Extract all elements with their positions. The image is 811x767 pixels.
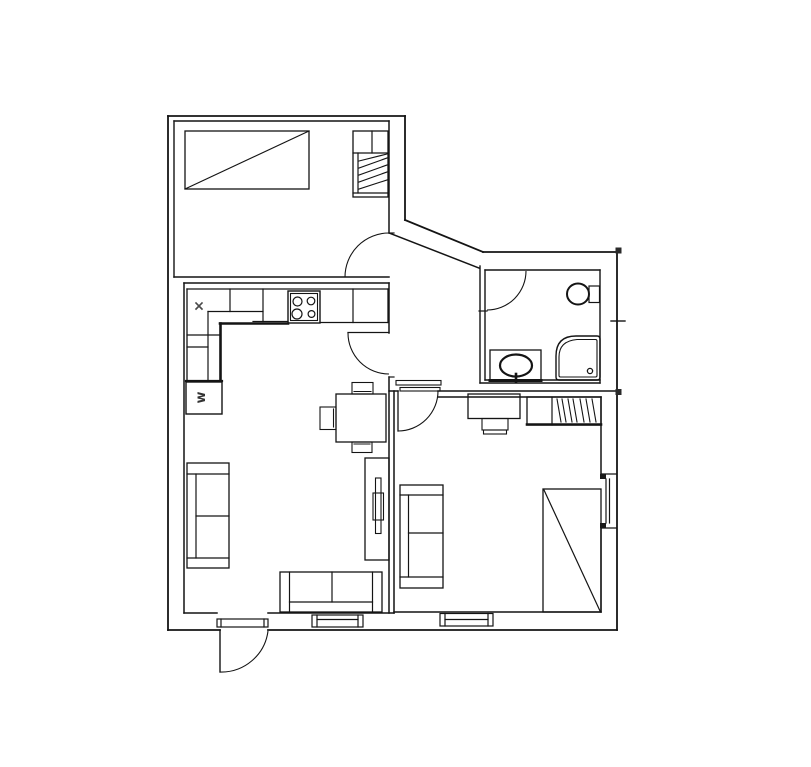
wardrobe1-hanger-1	[359, 180, 387, 189]
desk-chair-seat[interactable]	[482, 419, 508, 431]
stove-burner-tl	[293, 297, 302, 306]
wardrobe2-hanger-4	[573, 399, 577, 422]
wardrobe2-hanger-5	[580, 399, 584, 422]
tv-bracket	[373, 493, 384, 520]
sofa3-outline[interactable]	[400, 485, 443, 588]
door-arc-room1[interactable]	[345, 233, 389, 277]
selection-handle-top[interactable]	[616, 248, 622, 254]
shower-tray-inner	[559, 340, 597, 378]
wardrobe2-hanger-1	[557, 399, 561, 422]
window-bedroom-right-cap-bottom	[600, 523, 606, 528]
washing-machine-marker: w	[194, 391, 209, 403]
wall-outer-diagonal	[405, 220, 483, 252]
wardrobe2-hanger-6	[586, 399, 590, 422]
bed2-diagonal	[544, 490, 600, 611]
stove-outline[interactable]	[288, 291, 320, 323]
bed1-diagonal	[185, 131, 309, 189]
entrance-threshold	[217, 619, 268, 627]
door-arc-bathroom[interactable]	[487, 271, 526, 310]
stove-burner-tr	[307, 297, 315, 305]
tv-screen	[376, 478, 382, 534]
window-living-frame[interactable]	[312, 615, 363, 627]
shower-tray-outer[interactable]	[556, 336, 600, 380]
toilet-tank	[589, 286, 600, 303]
chair-top[interactable]	[352, 383, 373, 395]
door-arc-bedroom2[interactable]	[398, 391, 438, 431]
dining-table[interactable]	[336, 394, 386, 442]
corner-cabinet-marker: ×	[193, 299, 205, 315]
wall-inner-diagonal	[389, 233, 479, 268]
window-bedroom-right-cap-top	[600, 474, 606, 479]
shower-drain	[587, 368, 592, 373]
floor-plan-page: ×w	[0, 0, 811, 767]
desk-chair-back	[484, 430, 507, 434]
stove-burner-br	[308, 311, 315, 318]
floor-plan-drawing: ×w	[0, 0, 811, 767]
wardrobe2-hanger-3	[568, 399, 572, 422]
door-arc-kitchen[interactable]	[348, 333, 389, 374]
doorway-threshold-b	[400, 388, 440, 392]
sofa2-outline[interactable]	[280, 572, 382, 612]
toilet-bowl	[567, 284, 589, 305]
door-arc-entrance[interactable]	[220, 631, 268, 672]
tv-unit-outline[interactable]	[365, 458, 389, 560]
stove-burner-bl	[292, 309, 302, 319]
selection-handle-bottom[interactable]	[616, 389, 622, 395]
wardrobe2-hanger-7	[592, 399, 596, 422]
doorway-threshold-a	[396, 381, 441, 386]
wardrobe2-hanger-2	[562, 399, 566, 422]
